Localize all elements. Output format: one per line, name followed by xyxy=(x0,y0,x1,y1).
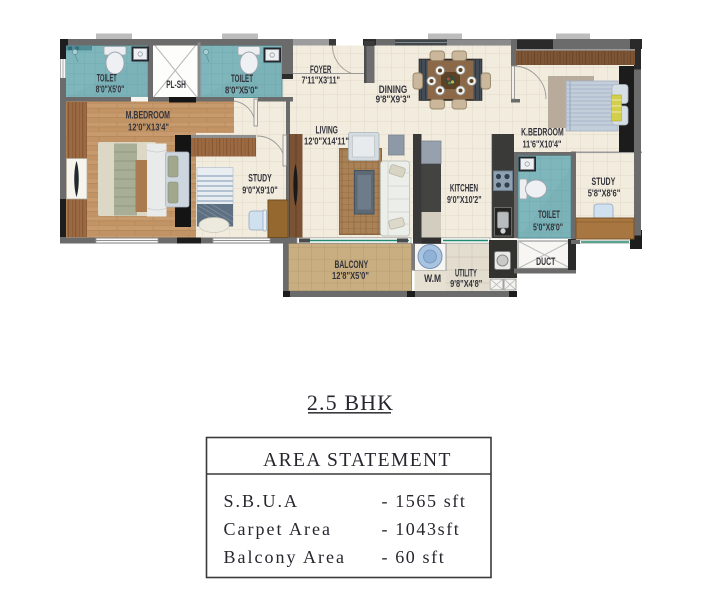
svg-text:Balcony Area: Balcony Area xyxy=(224,547,346,567)
svg-text:STUDY: STUDY xyxy=(592,176,616,188)
svg-text:9'0"X9'10": 9'0"X9'10" xyxy=(242,186,278,197)
svg-text:M.BEDROOM: M.BEDROOM xyxy=(126,110,171,122)
svg-text:- 60 sft: - 60 sft xyxy=(382,547,446,567)
svg-text:12'0"X14'11": 12'0"X14'11" xyxy=(304,137,349,148)
svg-text:8'0"X5'0": 8'0"X5'0" xyxy=(225,86,258,97)
svg-text:TOILET: TOILET xyxy=(231,73,253,85)
svg-text:5'8"X8'6": 5'8"X8'6" xyxy=(588,189,621,200)
svg-text:STUDY: STUDY xyxy=(248,173,272,185)
svg-text:9'8"X4'8": 9'8"X4'8" xyxy=(450,279,482,290)
svg-text:9'0"X10'2": 9'0"X10'2" xyxy=(447,195,482,206)
svg-text:2.5 BHK: 2.5 BHK xyxy=(307,390,394,415)
svg-text:12'8"X5'0": 12'8"X5'0" xyxy=(332,271,369,282)
svg-text:11'6"X10'4": 11'6"X10'4" xyxy=(523,140,562,151)
svg-text:KITCHEN: KITCHEN xyxy=(450,183,478,195)
svg-text:AREA STATEMENT: AREA STATEMENT xyxy=(263,450,452,471)
svg-text:9'8"X9'3": 9'8"X9'3" xyxy=(376,95,411,106)
svg-text:BALCONY: BALCONY xyxy=(334,259,368,271)
svg-text:PL-SH: PL-SH xyxy=(166,79,186,91)
svg-text:FOYER: FOYER xyxy=(310,64,332,76)
svg-text:S.B.U.A: S.B.U.A xyxy=(224,491,300,511)
svg-text:DUCT: DUCT xyxy=(536,256,556,268)
svg-text:7'11"X3'11": 7'11"X3'11" xyxy=(301,76,340,87)
svg-text:W.M: W.M xyxy=(424,273,441,285)
svg-text:LIVING: LIVING xyxy=(315,125,338,137)
svg-text:12'0"X13'4": 12'0"X13'4" xyxy=(128,123,169,134)
svg-text:- 1043sft: - 1043sft xyxy=(382,519,461,539)
svg-text:UTILITY: UTILITY xyxy=(455,268,477,280)
svg-text:TOILET: TOILET xyxy=(97,73,117,85)
svg-text:TOILET: TOILET xyxy=(538,209,560,221)
svg-text:5'0"X8'0": 5'0"X8'0" xyxy=(533,223,563,234)
svg-text:K.BEDROOM: K.BEDROOM xyxy=(521,127,564,139)
svg-text:Carpet Area: Carpet Area xyxy=(224,519,332,539)
svg-text:8'0"X5'0": 8'0"X5'0" xyxy=(96,85,125,96)
svg-text:- 1565 sft: - 1565 sft xyxy=(382,491,467,511)
